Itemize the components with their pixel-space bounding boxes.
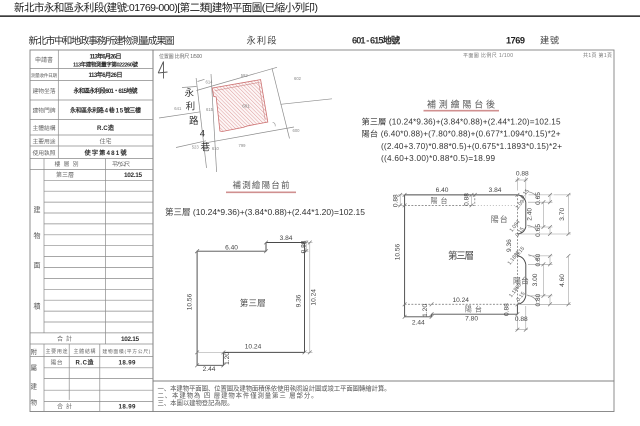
svg-text:第三層 (10.24*9.36)+(3.84*0.88)+(: 第三層 (10.24*9.36)+(3.84*0.88)+(2.44*1.20)… bbox=[362, 117, 561, 127]
svg-text:0.88: 0.88 bbox=[515, 316, 528, 323]
svg-text:3.84: 3.84 bbox=[489, 187, 502, 194]
svg-text:615: 615 bbox=[206, 107, 214, 112]
svg-text:永利段: 永利段 bbox=[247, 35, 277, 46]
svg-text:3.00: 3.00 bbox=[532, 273, 539, 286]
svg-text:1.20: 1.20 bbox=[422, 304, 429, 317]
svg-text:永和區永利路 4 巷 1 5 號三樓: 永和區永利路 4 巷 1 5 號三樓 bbox=[69, 107, 141, 115]
svg-text:0.65: 0.65 bbox=[535, 192, 542, 205]
svg-text:2.40: 2.40 bbox=[527, 208, 534, 221]
svg-text:9.36: 9.36 bbox=[296, 294, 303, 307]
svg-text:614: 614 bbox=[206, 80, 214, 85]
svg-text:第三層: 第三層 bbox=[56, 171, 74, 179]
svg-text:((2.40+3.70)*0.88*0.5)+(0.675*: ((2.40+3.70)*0.88*0.5)+(0.675*1.1893*0.1… bbox=[381, 142, 562, 151]
svg-text:一、本建物平面圖、位置圖及建物面積係依使用執照設計圖或竣工平: 一、本建物平面圖、位置圖及建物面積係依使用執照設計圖或竣工平面圖轉繪計算。 bbox=[158, 384, 391, 393]
svg-text:10.24: 10.24 bbox=[245, 343, 262, 350]
svg-text:平面圖 比例尺 1/100: 平面圖 比例尺 1/100 bbox=[463, 52, 513, 59]
svg-text:0.88: 0.88 bbox=[504, 303, 511, 316]
svg-text:第三層: 第三層 bbox=[240, 298, 266, 308]
svg-text:建: 建 bbox=[31, 381, 38, 390]
svg-text:3.70: 3.70 bbox=[559, 208, 566, 221]
svg-text:523: 523 bbox=[192, 145, 200, 150]
svg-text:位置圖 比例尺 1/500: 位置圖 比例尺 1/500 bbox=[159, 53, 202, 60]
svg-text:R.C造: R.C造 bbox=[76, 359, 94, 367]
svg-text:18.99: 18.99 bbox=[119, 404, 137, 411]
svg-text:主體結構: 主體結構 bbox=[33, 124, 56, 132]
svg-text:物: 物 bbox=[31, 397, 38, 406]
svg-text:600: 600 bbox=[293, 128, 301, 133]
svg-text:3.84: 3.84 bbox=[280, 235, 293, 242]
svg-text:二、本建物為 四 層建物本件僅測量第三 層部分。: 二、本建物為 四 層建物本件僅測量第三 層部分。 bbox=[158, 391, 318, 400]
svg-text:物: 物 bbox=[34, 231, 41, 240]
svg-text:10.24: 10.24 bbox=[311, 289, 318, 306]
svg-text:積: 積 bbox=[34, 302, 41, 311]
svg-text:10.56: 10.56 bbox=[395, 243, 402, 260]
svg-text:路: 路 bbox=[189, 115, 199, 127]
svg-text:0.88: 0.88 bbox=[301, 240, 308, 253]
svg-text:建物坐落: 建物坐落 bbox=[33, 87, 56, 95]
svg-text:住宅: 住宅 bbox=[100, 138, 112, 146]
svg-text:建號: 建號 bbox=[540, 35, 559, 46]
svg-text:10.24: 10.24 bbox=[452, 297, 469, 304]
svg-text:共1頁 第1頁: 共1頁 第1頁 bbox=[583, 52, 612, 59]
svg-text:0.88: 0.88 bbox=[516, 171, 529, 178]
svg-text:113年建物測量字第022260號: 113年建物測量字第022260號 bbox=[73, 60, 138, 68]
svg-text:測量收件日期: 測量收件日期 bbox=[31, 72, 57, 79]
svg-text:601: 601 bbox=[242, 103, 250, 108]
svg-text:4: 4 bbox=[200, 129, 205, 140]
svg-text:102.15: 102.15 bbox=[121, 336, 139, 343]
svg-text:陽台: 陽台 bbox=[513, 275, 529, 285]
svg-text:((4.60+3.00)*0.88*0.5)=18.99: ((4.60+3.00)*0.88*0.5)=18.99 bbox=[381, 154, 495, 163]
svg-text:6.40: 6.40 bbox=[225, 245, 238, 252]
svg-text:陽台 (6.40*0.88)+(7.80*0.88)+(0.: 陽台 (6.40*0.88)+(7.80*0.88)+(0.677*1.094*… bbox=[362, 129, 561, 139]
svg-text:樓 層 別: 樓 層 別 bbox=[55, 160, 79, 168]
svg-text:799: 799 bbox=[239, 143, 247, 148]
svg-text:利: 利 bbox=[186, 101, 196, 113]
svg-text:4.60: 4.60 bbox=[559, 274, 566, 287]
svg-text:面: 面 bbox=[34, 262, 41, 270]
svg-text:附: 附 bbox=[31, 347, 38, 356]
svg-text:1769: 1769 bbox=[506, 36, 525, 46]
svg-text:0.80: 0.80 bbox=[535, 293, 542, 306]
svg-text:6.40: 6.40 bbox=[436, 187, 449, 194]
svg-text:18.99: 18.99 bbox=[119, 360, 137, 367]
svg-text:新北市永和區永利段(建號:01769-000)[第二類]建物: 新北市永和區永利段(建號:01769-000)[第二類]建物平面圖(已縮小列印) bbox=[14, 1, 318, 14]
svg-text:0.80: 0.80 bbox=[535, 253, 542, 266]
svg-text:102.15: 102.15 bbox=[124, 172, 142, 179]
svg-text:新北市中和地政事務所建物測量成果圖: 新北市中和地政事務所建物測量成果圖 bbox=[29, 34, 175, 47]
svg-text:永: 永 bbox=[184, 87, 194, 99]
svg-text:601 - 615地號: 601 - 615地號 bbox=[352, 35, 401, 46]
svg-text:建: 建 bbox=[34, 205, 41, 214]
svg-text:陽台: 陽台 bbox=[491, 214, 508, 224]
svg-text:使用執照: 使用執照 bbox=[33, 149, 56, 157]
svg-text:平方公尺: 平方公尺 bbox=[112, 160, 130, 168]
svg-text:2.44: 2.44 bbox=[203, 366, 216, 373]
svg-text:巷: 巷 bbox=[201, 143, 211, 154]
svg-text:10.56: 10.56 bbox=[186, 293, 193, 310]
svg-text:592: 592 bbox=[241, 73, 249, 78]
svg-text:主要用途: 主要用途 bbox=[33, 138, 56, 146]
svg-text:主體結構: 主體結構 bbox=[74, 348, 96, 355]
svg-text:113年6月26日: 113年6月26日 bbox=[89, 71, 123, 79]
svg-text:0.88: 0.88 bbox=[463, 193, 470, 206]
svg-text:申請書: 申請書 bbox=[35, 56, 53, 64]
svg-text:永和區永利段601‧615地號: 永和區永利段601‧615地號 bbox=[73, 87, 138, 95]
svg-text:建物門牌: 建物門牌 bbox=[33, 107, 56, 115]
svg-text:0.88: 0.88 bbox=[392, 194, 399, 207]
svg-text:1.20: 1.20 bbox=[224, 352, 231, 365]
svg-text:610: 610 bbox=[212, 146, 220, 151]
svg-text:三、本圖以建物登記為限。: 三、本圖以建物登記為限。 bbox=[158, 398, 234, 407]
svg-text:主要用途: 主要用途 bbox=[46, 348, 68, 355]
svg-text:屬: 屬 bbox=[31, 364, 38, 372]
svg-text:9.36: 9.36 bbox=[506, 239, 513, 252]
svg-text:陽台: 陽台 bbox=[51, 359, 63, 367]
svg-text:7.80: 7.80 bbox=[465, 316, 478, 323]
svg-text:602: 602 bbox=[294, 76, 302, 81]
svg-text:641: 641 bbox=[174, 106, 182, 111]
svg-text:第三層: 第三層 bbox=[448, 250, 474, 262]
svg-text:第三層 (10.24*9.36)+(3.84*0.88)+(: 第三層 (10.24*9.36)+(3.84*0.88)+(2.44*1.20)… bbox=[165, 207, 365, 217]
svg-text:113年6月26日: 113年6月26日 bbox=[90, 53, 122, 61]
svg-text:合 計: 合 計 bbox=[57, 403, 72, 411]
svg-text:2.44: 2.44 bbox=[412, 320, 425, 327]
svg-text:建物面積(平方公尺): 建物面積(平方公尺) bbox=[102, 348, 150, 355]
svg-text:0.65: 0.65 bbox=[535, 224, 542, 237]
svg-text:R.C造: R.C造 bbox=[97, 124, 115, 132]
svg-text:合 計: 合 計 bbox=[57, 335, 72, 343]
